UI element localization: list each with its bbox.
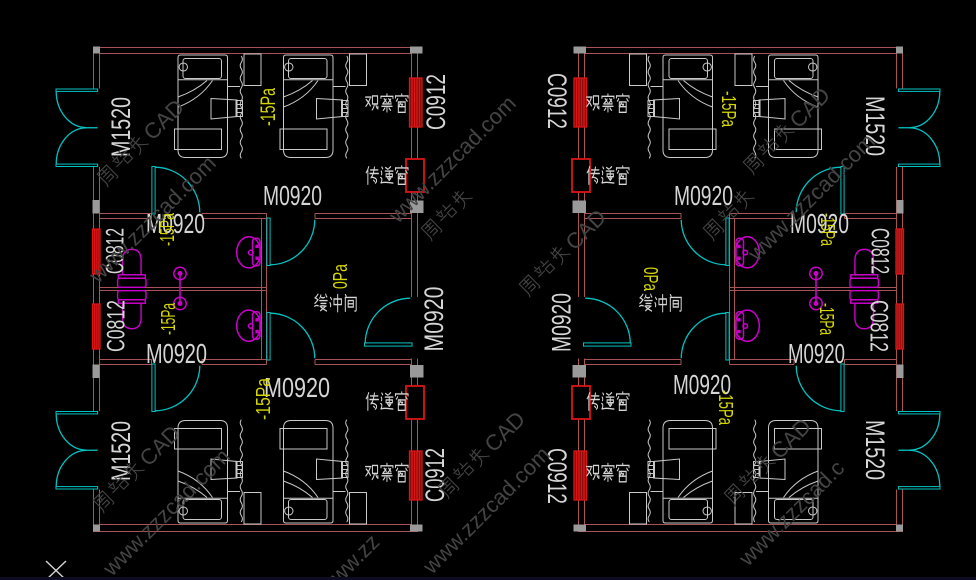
svg-text:C0912: C0912 [421, 74, 451, 130]
svg-text:M0920: M0920 [419, 287, 449, 352]
svg-text:M0920: M0920 [146, 338, 207, 369]
svg-text:M1520: M1520 [106, 421, 136, 481]
svg-text:-15Pa: -15Pa [816, 213, 838, 247]
svg-text:C0812: C0812 [866, 228, 894, 274]
svg-text:M0920: M0920 [263, 180, 322, 211]
svg-text:-15Pa: -15Pa [257, 88, 280, 126]
svg-text:-15Pa: -15Pa [714, 390, 736, 426]
svg-text:C0812: C0812 [103, 300, 131, 352]
svg-text:C0912: C0912 [542, 73, 572, 129]
svg-text:-15Pa: -15Pa [253, 377, 275, 420]
svg-text:M0920: M0920 [788, 338, 845, 369]
svg-text:0Pa: 0Pa [330, 263, 352, 289]
svg-text:-15Pa: -15Pa [158, 302, 180, 335]
svg-text:C0812: C0812 [865, 300, 893, 352]
svg-text:M0920: M0920 [547, 293, 577, 352]
svg-text:M0920: M0920 [674, 180, 733, 211]
svg-text:-15Pa: -15Pa [717, 91, 739, 128]
svg-text:0Pa: 0Pa [639, 267, 661, 292]
svg-text:M1520: M1520 [860, 420, 890, 480]
svg-text:-15Pa: -15Pa [815, 303, 837, 336]
